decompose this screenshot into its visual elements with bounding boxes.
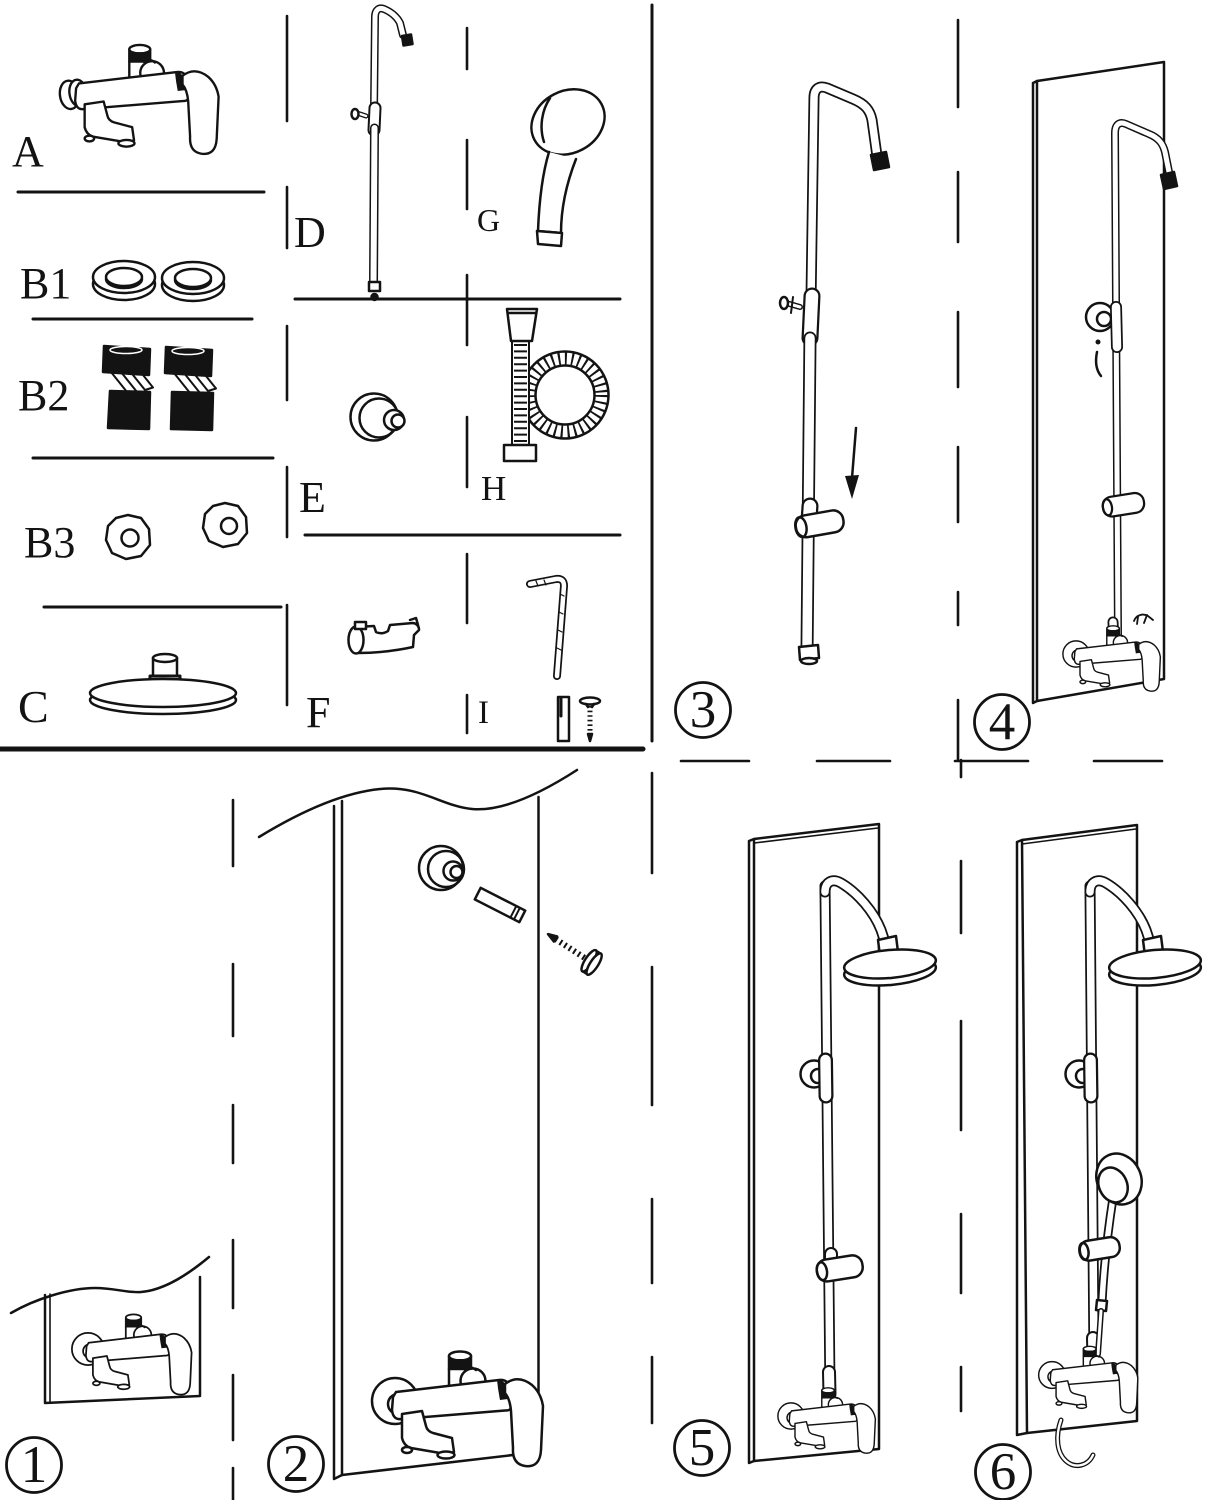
svg-text:A: A (12, 127, 44, 176)
svg-text:B2: B2 (18, 371, 69, 420)
svg-text:C: C (18, 681, 49, 732)
svg-text:E: E (299, 473, 326, 522)
svg-text:B1: B1 (20, 259, 71, 308)
svg-text:G: G (477, 202, 500, 238)
svg-text:B3: B3 (24, 518, 75, 567)
svg-text:2: 2 (283, 1435, 310, 1493)
svg-text:6: 6 (990, 1443, 1017, 1500)
svg-text:1: 1 (21, 1436, 48, 1494)
svg-text:H: H (481, 469, 506, 508)
svg-text:4: 4 (989, 693, 1016, 751)
svg-text:D: D (294, 208, 326, 257)
svg-text:I: I (478, 695, 489, 731)
svg-text:F: F (306, 688, 330, 737)
svg-text:5: 5 (689, 1419, 716, 1477)
svg-text:3: 3 (690, 681, 717, 739)
